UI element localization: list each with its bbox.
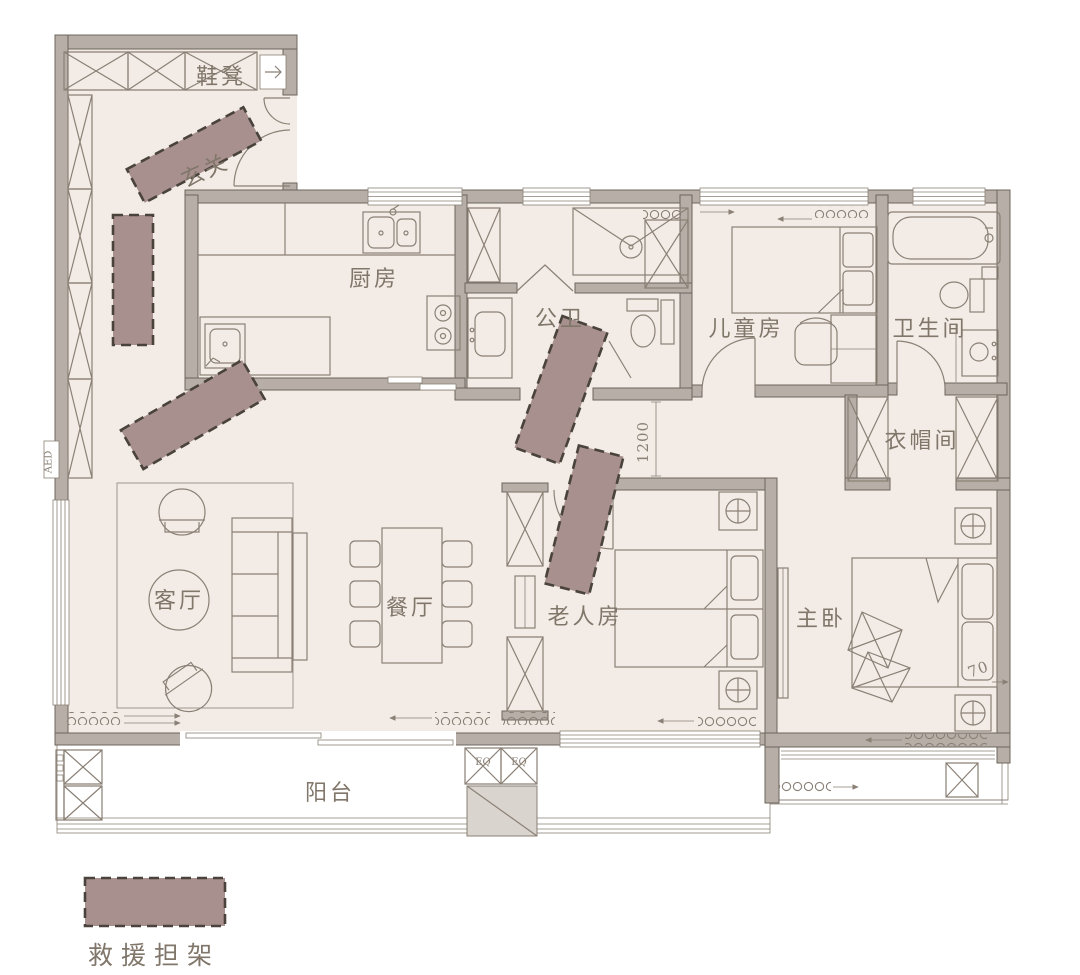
legend: 救援担架 xyxy=(85,878,225,970)
label-dining-room: 餐厅 xyxy=(386,596,436,621)
label-bathroom: 卫生间 xyxy=(892,317,967,342)
eq-label-left: EQ xyxy=(475,757,491,768)
label-cloakroom: 衣帽间 xyxy=(884,429,959,454)
shower-screen-coil xyxy=(643,210,681,222)
label-shoe-bench: 鞋凳 xyxy=(196,65,246,90)
legend-stretcher-label: 救援担架 xyxy=(88,941,220,970)
floor-plan-page: 1200 70 AED EQ EQ 鞋凳 玄关 厨房 公卫 儿童房 卫生间 衣帽… xyxy=(0,0,1080,975)
label-balcony: 阳台 xyxy=(305,781,355,806)
label-public-bath: 公卫 xyxy=(535,307,585,332)
label-master-bedroom: 主卧 xyxy=(796,607,846,632)
label-kit: 厨房 xyxy=(349,267,399,292)
stretcher-path-hall-1 xyxy=(113,215,153,345)
legend-stretcher-swatch xyxy=(85,878,225,926)
label-living-room: 客厅 xyxy=(154,589,204,614)
eq-label-right: EQ xyxy=(511,757,527,768)
corridor-width-dim: 1200 xyxy=(634,421,652,463)
aed-tag: AED xyxy=(44,451,55,475)
label-elder-room: 老人房 xyxy=(547,605,622,630)
label-kids-room: 儿童房 xyxy=(708,317,783,342)
floor-plan-svg: 1200 70 AED EQ EQ 鞋凳 玄关 厨房 公卫 儿童房 卫生间 衣帽… xyxy=(0,0,1080,975)
